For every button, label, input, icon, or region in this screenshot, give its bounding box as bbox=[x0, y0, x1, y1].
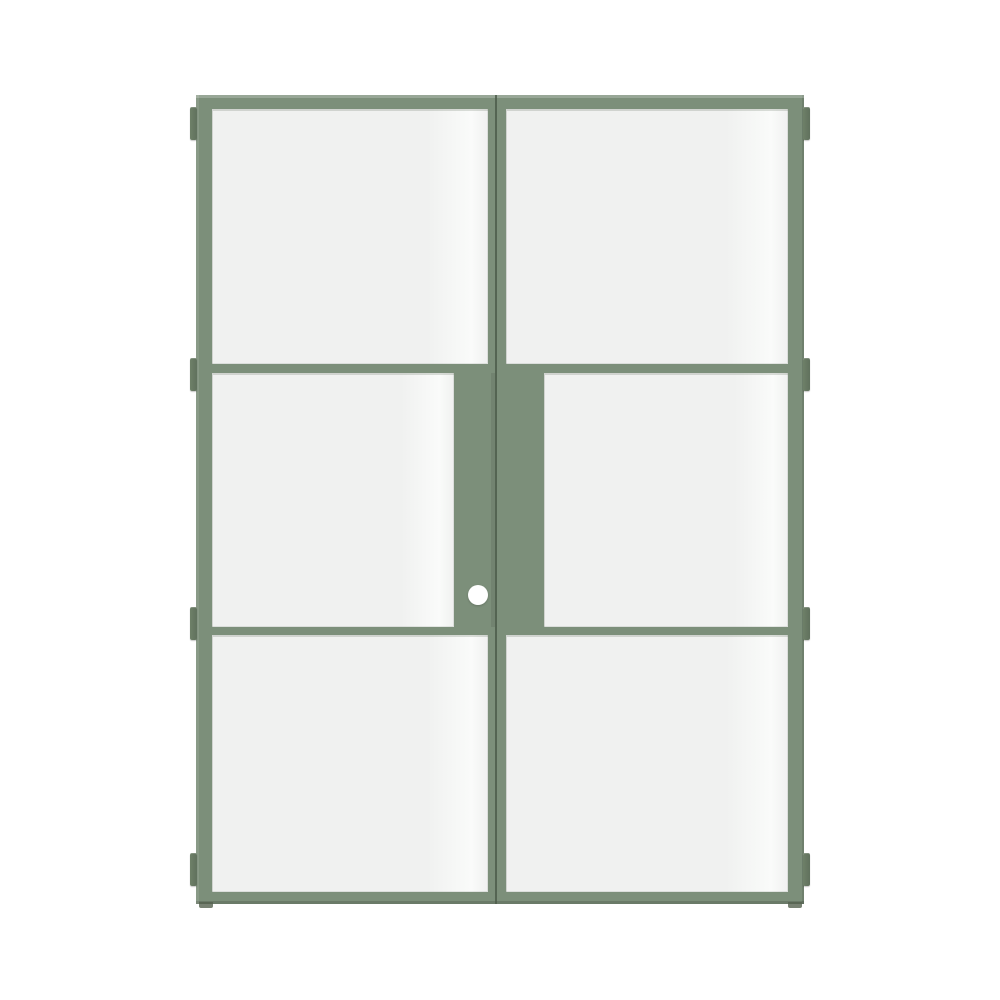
hinge-left-bottom bbox=[190, 853, 197, 886]
hinge-right-upper-middle bbox=[803, 358, 810, 391]
product-image-canvas bbox=[0, 0, 1000, 1000]
glass-pane-left-bottom bbox=[212, 635, 488, 892]
door-knob bbox=[468, 585, 488, 605]
hinge-left-lower-middle bbox=[190, 607, 197, 640]
door-meeting-gap bbox=[495, 95, 497, 904]
hinge-left-top bbox=[190, 107, 197, 140]
floor-shadow-left bbox=[199, 902, 213, 908]
glass-pane-right-bottom bbox=[506, 635, 788, 892]
hinge-left-upper-middle bbox=[190, 358, 197, 391]
glass-pane-right-top bbox=[506, 109, 788, 364]
glass-pane-left-top bbox=[212, 109, 488, 364]
glass-pane-left-middle bbox=[212, 373, 454, 627]
floor-shadow-right bbox=[788, 902, 802, 908]
glass-pane-right-middle bbox=[544, 373, 788, 627]
double-door-frame bbox=[196, 95, 804, 904]
hinge-right-bottom bbox=[803, 853, 810, 886]
hinge-right-lower-middle bbox=[803, 607, 810, 640]
hinge-right-top bbox=[803, 107, 810, 140]
